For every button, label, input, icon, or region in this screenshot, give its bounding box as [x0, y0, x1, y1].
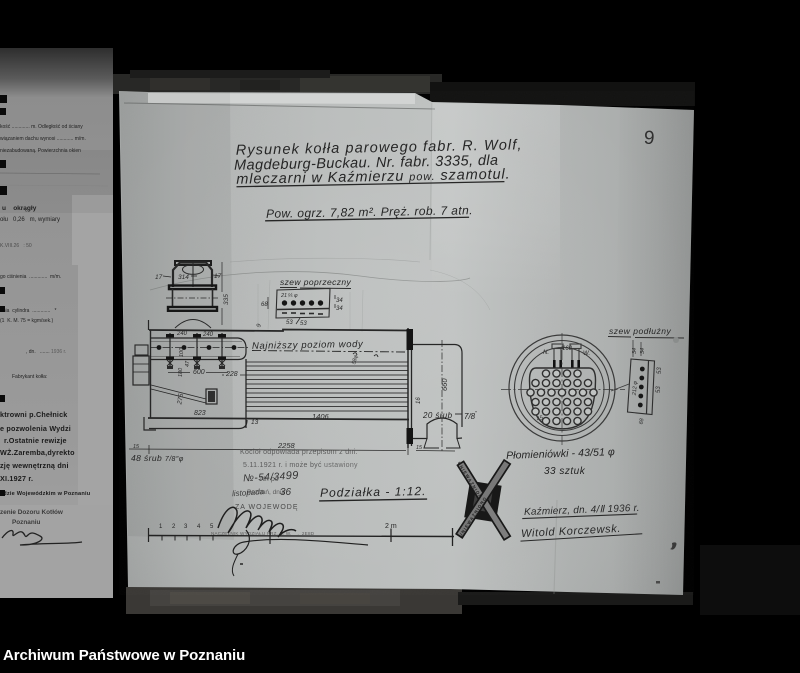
- svg-text:660: 660: [440, 378, 449, 391]
- svg-text:W.: W.: [583, 351, 590, 357]
- svg-text:Kocioł odpowiada przepisom z d: Kocioł odpowiada przepisom z dni.: [240, 449, 358, 456]
- svg-text:zję wewnętrzną dni: zję wewnętrzną dni: [0, 461, 69, 470]
- svg-text:ołu 0,26 m, wymiary: ołu 0,26 m, wymiary: [0, 217, 60, 223]
- svg-text:XI.1927 r.: XI.1927 r.: [0, 474, 33, 483]
- svg-text:e pozwolenia Wydzi: e pozwolenia Wydzi: [0, 424, 71, 433]
- svg-text:u okrągły: u okrągły: [2, 205, 37, 212]
- svg-text:53: 53: [657, 367, 663, 374]
- svg-text:228: 228: [225, 371, 238, 378]
- svg-text:47: 47: [185, 360, 191, 367]
- svg-text:13: 13: [251, 419, 259, 426]
- svg-text:17: 17: [214, 273, 222, 280]
- svg-text:335: 335: [223, 294, 230, 305]
- svg-text:(1 K. M. 75 = kgm/sek.): (1 K. M. 75 = kgm/sek.): [0, 318, 54, 324]
- svg-text:17: 17: [155, 274, 163, 281]
- svg-text:szew poprzeczny: szew poprzeczny: [280, 277, 352, 287]
- svg-text:16: 16: [416, 397, 422, 404]
- svg-text:Fabrykant kołła:: Fabrykant kołła:: [12, 374, 47, 380]
- svg-text:szew podłużny: szew podłużny: [609, 326, 672, 336]
- svg-text:314: 314: [178, 274, 189, 281]
- svg-text:33 sztuk: 33 sztuk: [544, 466, 586, 477]
- svg-text:K.VIII.26 : 50: K.VIII.26 : 50: [0, 243, 32, 249]
- svg-text:53: 53: [656, 386, 662, 393]
- svg-text:600: 600: [193, 369, 205, 376]
- svg-text:kość ............. m. Odległo: kość ............. m. Odległość od ścian…: [0, 124, 83, 130]
- svg-text:240: 240: [176, 331, 188, 337]
- svg-text:53: 53: [286, 320, 293, 326]
- svg-text:Najniższy poziom wody: Najniższy poziom wody: [252, 339, 364, 352]
- svg-text:1406: 1406: [312, 412, 330, 421]
- svg-text:ędzie Wojewódzkim w Poznaniu: ędzie Wojewódzkim w Poznaniu: [0, 491, 91, 497]
- svg-text:5.11.1921 r. i może być ustawi: 5.11.1921 r. i może być ustawiony: [243, 462, 358, 469]
- svg-text:ZA WOJEWODĘ: ZA WOJEWODĘ: [235, 504, 299, 511]
- svg-text:Poznaniu: Poznaniu: [12, 519, 40, 526]
- svg-text:9: 9: [643, 128, 655, 150]
- svg-text:r.Ostatnie rewizje: r.Ostatnie rewizje: [4, 436, 67, 445]
- svg-text:, dn. ....... 1936 r.: , dn. ....... 1936 r.: [26, 349, 66, 355]
- svg-text:2 m: 2 m: [385, 523, 397, 530]
- svg-text:160: 160: [562, 346, 573, 352]
- svg-text:15: 15: [416, 445, 423, 451]
- svg-text:zenie Dozoru Kotłów: zenie Dozoru Kotłów: [0, 509, 63, 516]
- svg-text:niezabudowaną. Powierzchnia o: niezabudowaną. Powierzchnia okien: [0, 148, 81, 154]
- svg-text:wiązaniem dachu wynosi .......: wiązaniem dachu wynosi ............ m/m.: [0, 136, 86, 142]
- svg-text:240: 240: [202, 332, 214, 338]
- svg-text:34: 34: [336, 306, 343, 312]
- svg-text:ktrowni p.Chełnick: ktrowni p.Chełnick: [0, 410, 68, 419]
- svg-text:20 śrub: 20 śrub: [422, 411, 453, 420]
- svg-text:Archiwum Państwowe w Poznaniu: Archiwum Państwowe w Poznaniu: [3, 647, 245, 664]
- svg-text:68: 68: [261, 302, 268, 308]
- svg-text:WŻ.Zaremba,dyrekto: WŻ.Zaremba,dyrekto: [0, 448, 75, 457]
- svg-text:″: ″: [475, 411, 477, 417]
- svg-text:180: 180: [178, 367, 184, 377]
- svg-text:enia cylindra .............: enia cylindra ............. *: [0, 308, 56, 314]
- svg-text:53: 53: [300, 321, 307, 327]
- svg-text:36: 36: [280, 487, 292, 498]
- svg-text:Podziałka - 1:12.: Podziałka - 1:12.: [320, 484, 427, 500]
- svg-text:34: 34: [336, 298, 343, 304]
- svg-text:N.: N.: [543, 350, 549, 356]
- svg-text:7/8: 7/8: [464, 412, 476, 421]
- svg-text:100: 100: [179, 347, 185, 357]
- svg-text:823: 823: [194, 410, 206, 417]
- svg-text:go ciśnienia ............. m: go ciśnienia ............. m/m.: [0, 274, 61, 280]
- svg-text:21⅕ φ: 21⅕ φ: [280, 292, 298, 299]
